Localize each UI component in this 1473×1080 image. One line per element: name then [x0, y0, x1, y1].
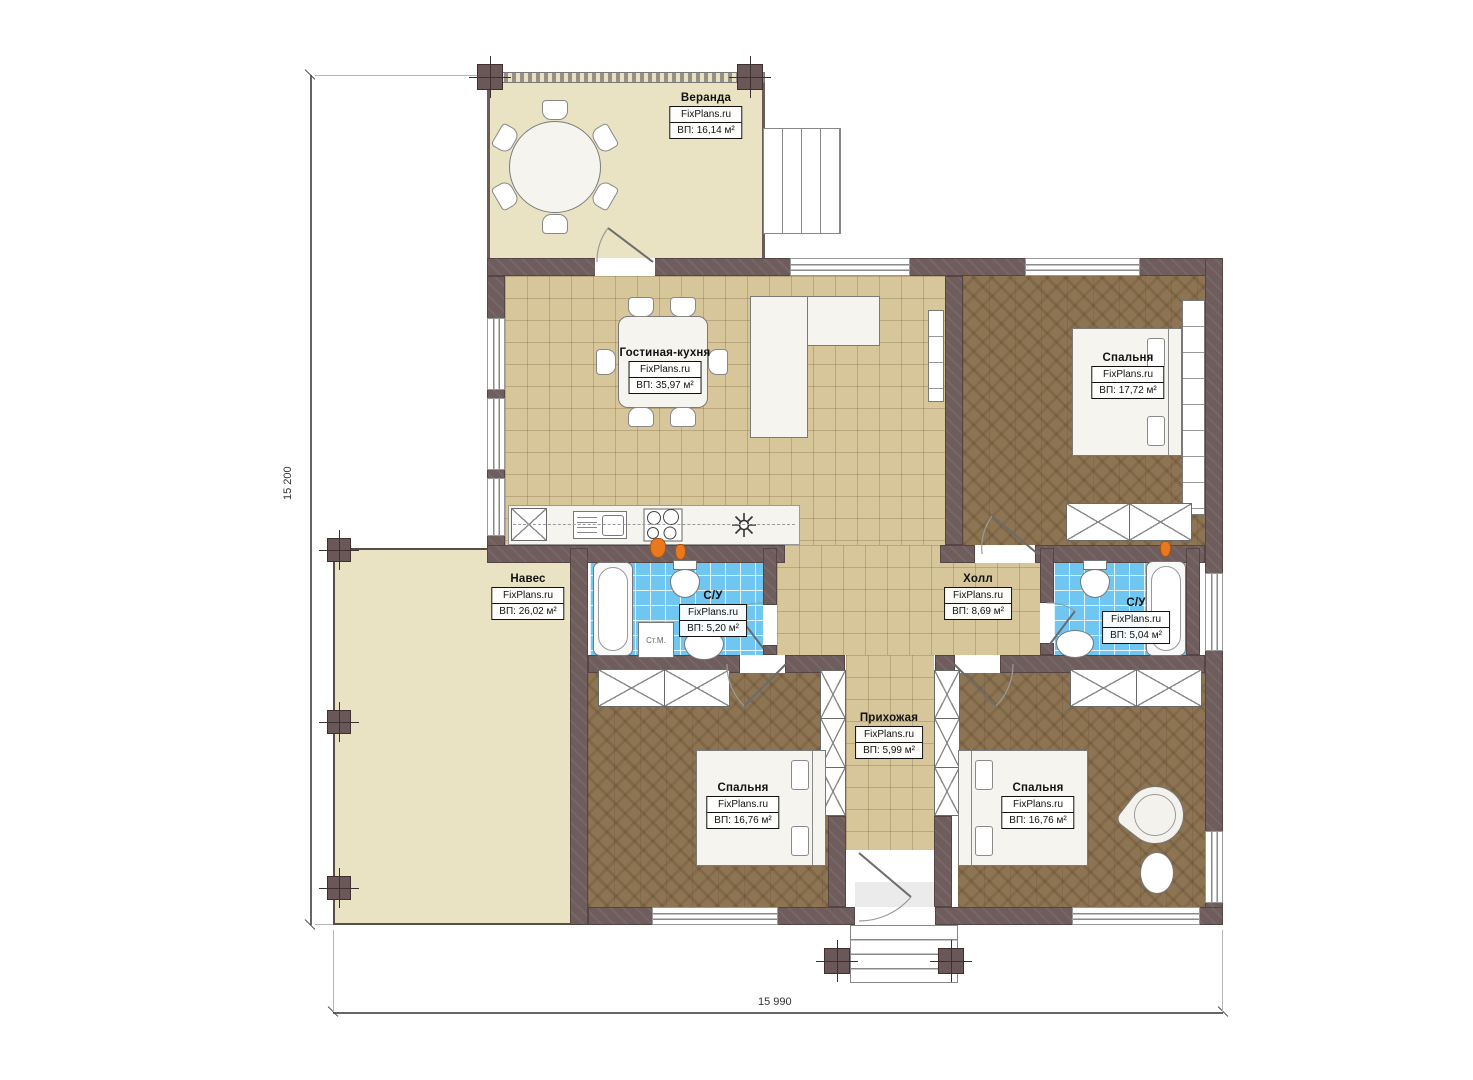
column-post [477, 64, 503, 90]
wall-segment [828, 816, 846, 907]
sofa-symbol [750, 296, 808, 438]
room-name: Холл [944, 573, 1012, 585]
wall-segment [763, 548, 777, 605]
room-name: Навес [491, 573, 564, 585]
room-area: ВП: 5,20 м² [680, 621, 746, 636]
brand-watermark: FixPlans.ru [1103, 612, 1169, 628]
window [1205, 831, 1223, 903]
room-area: ВП: 16,76 м² [1002, 813, 1073, 828]
closet-shelf-symbol [1182, 300, 1205, 515]
window [487, 478, 505, 536]
room-name: Спальня [1091, 352, 1164, 364]
veranda-top-wall [487, 72, 765, 83]
window [1205, 573, 1223, 651]
room-area: ВП: 5,04 м² [1103, 628, 1169, 643]
door-opening [763, 605, 777, 645]
washing-machine-label: Ст.М. [646, 636, 666, 645]
room-label-bedroom-left: Спальня FixPlans.ru ВП: 16,76 м² [706, 782, 779, 829]
fridge-symbol [511, 508, 547, 541]
floor-plan-canvas: 15 200 15 990 [0, 0, 1473, 1080]
wardrobe-symbol [598, 669, 730, 707]
wall-segment [945, 276, 963, 545]
brand-watermark: FixPlans.ru [945, 588, 1011, 604]
washbasin-symbol [1056, 630, 1094, 658]
room-label-bedroom-right: Спальня FixPlans.ru ВП: 16,76 м² [1001, 782, 1074, 829]
wall-segment [940, 545, 975, 563]
room-name: Прихожая [855, 712, 923, 724]
veranda-chair-symbol [542, 214, 568, 234]
door-opening [740, 655, 785, 673]
door-opening [955, 655, 1000, 673]
room-area: ВП: 17,72 м² [1092, 383, 1163, 398]
brand-watermark: FixPlans.ru [707, 797, 778, 813]
window [652, 907, 778, 925]
room-label-entry: Прихожая FixPlans.ru ВП: 5,99 м² [855, 712, 923, 759]
column-post [327, 710, 351, 734]
tv-stand-symbol [928, 310, 944, 402]
extension-line [1222, 930, 1223, 1012]
brand-watermark: FixPlans.ru [492, 588, 563, 604]
column-post [327, 538, 351, 562]
wall-segment [487, 545, 785, 563]
column-post [737, 64, 763, 90]
column-post [938, 948, 964, 974]
stairs-symbol [763, 128, 841, 234]
vent-symbol [731, 512, 757, 538]
dining-chair-symbol [628, 297, 654, 317]
door-opening [975, 545, 1035, 563]
room-area: ВП: 16,14 м² [670, 123, 741, 138]
stool-symbol [1140, 852, 1174, 894]
column-post [327, 876, 351, 900]
dining-chair-symbol [596, 349, 616, 375]
dimension-line-vertical [310, 75, 312, 925]
brand-watermark: FixPlans.ru [856, 727, 922, 743]
room-label-veranda: Веранда FixPlans.ru ВП: 16,14 м² [669, 92, 742, 139]
window [487, 398, 505, 470]
room-name: Веранда [669, 92, 742, 104]
door-opening [595, 258, 655, 276]
dimension-label-horizontal: 15 990 [758, 996, 792, 1008]
wardrobe-symbol [1066, 503, 1192, 541]
dining-chair-symbol [670, 297, 696, 317]
extension-line [333, 930, 334, 1012]
room-label-bath-right: С/У FixPlans.ru ВП: 5,04 м² [1102, 597, 1170, 644]
column-post [824, 948, 850, 974]
wall-segment [570, 548, 588, 925]
room-name: С/У [1102, 597, 1170, 609]
room-area: ВП: 26,02 м² [492, 604, 563, 619]
wall-segment [1186, 548, 1200, 655]
brand-watermark: FixPlans.ru [1002, 797, 1073, 813]
room-label-bath-left: С/У FixPlans.ru ВП: 5,20 м² [679, 590, 747, 637]
room-label-living: Гостиная-кухня FixPlans.ru ВП: 35,97 м² [620, 347, 711, 394]
room-area: ВП: 8,69 м² [945, 604, 1011, 619]
room-name: С/У [679, 590, 747, 602]
brand-watermark: FixPlans.ru [670, 107, 741, 123]
radiator-symbol [650, 538, 666, 558]
door-opening [1040, 603, 1054, 643]
room-label-hall: Холл FixPlans.ru ВП: 8,69 м² [944, 573, 1012, 620]
stove-symbol [643, 508, 683, 542]
veranda-table-symbol [509, 121, 601, 213]
room-area: ВП: 16,76 м² [707, 813, 778, 828]
window [487, 318, 505, 390]
wall-segment [934, 816, 952, 907]
wall-segment [1040, 643, 1054, 655]
room-area: ВП: 35,97 м² [629, 378, 700, 393]
room-name: Гостиная-кухня [620, 347, 711, 359]
room-area: ВП: 5,99 м² [856, 743, 922, 758]
room-label-bedroom-top: Спальня FixPlans.ru ВП: 17,72 м² [1091, 352, 1164, 399]
wall-segment [763, 645, 777, 655]
dining-chair-symbol [670, 407, 696, 427]
dimension-line-horizontal [333, 1012, 1223, 1014]
bathtub-symbol [593, 562, 633, 656]
door-opening [855, 907, 935, 925]
radiator-symbol [1160, 541, 1171, 557]
radiator-symbol [675, 544, 686, 560]
dimension-label-vertical: 15 200 [282, 466, 294, 500]
room-label-canopy: Навес FixPlans.ru ВП: 26,02 м² [491, 573, 564, 620]
washing-machine-symbol: Ст.М. [638, 622, 674, 658]
wardrobe-symbol [1070, 669, 1202, 707]
room-name: Спальня [1001, 782, 1074, 794]
kitchen-sink-symbol [573, 511, 627, 539]
window [790, 258, 910, 276]
entry-closet-symbol [934, 670, 960, 816]
brand-watermark: FixPlans.ru [629, 362, 700, 378]
extension-line [315, 75, 487, 76]
wall-segment [1040, 548, 1054, 603]
brand-watermark: FixPlans.ru [1092, 367, 1163, 383]
window [1025, 258, 1140, 276]
room-name: Спальня [706, 782, 779, 794]
brand-watermark: FixPlans.ru [680, 605, 746, 621]
dining-chair-symbol [628, 407, 654, 427]
veranda-chair-symbol [542, 100, 568, 120]
window [1072, 907, 1200, 925]
dining-chair-symbol [708, 349, 728, 375]
extension-line [315, 924, 333, 925]
toilet-symbol [1080, 560, 1110, 598]
